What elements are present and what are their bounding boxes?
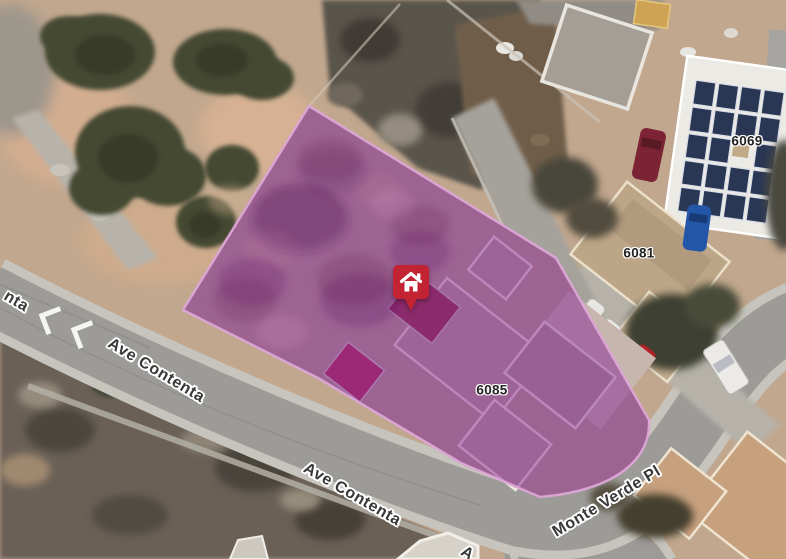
home-pin-icon: [392, 264, 430, 314]
map-canvas[interactable]: Ave Contenta Ave Contenta Monte Verde Pl…: [0, 0, 786, 559]
property-pin[interactable]: [392, 264, 430, 314]
